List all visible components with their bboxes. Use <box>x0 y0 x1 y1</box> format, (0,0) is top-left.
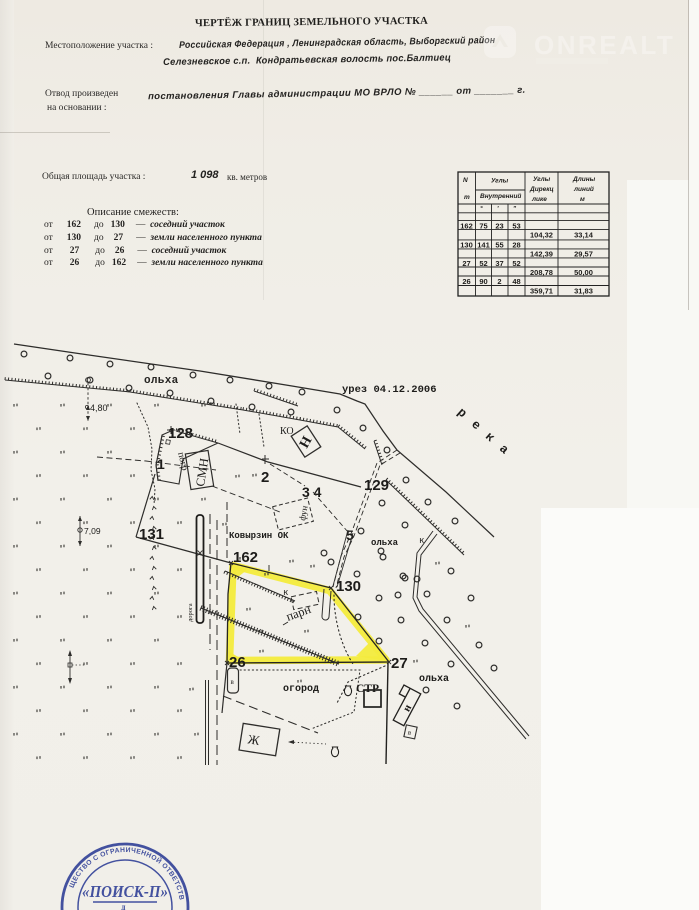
svg-text:N: N <box>463 177 468 184</box>
svg-text:37: 37 <box>495 259 503 268</box>
svg-text:ольха: ольха <box>144 375 179 387</box>
svg-text:фун: фун <box>297 505 309 522</box>
svg-text:река: река <box>454 405 519 464</box>
svg-text:СТР: СТР <box>356 683 379 695</box>
svg-text:3 4: 3 4 <box>302 484 322 500</box>
svg-text:т: т <box>464 194 470 201</box>
svg-text:23: 23 <box>495 221 503 230</box>
svg-text:Ж: Ж <box>247 731 261 748</box>
svg-text:2: 2 <box>497 277 501 286</box>
svg-text:к: к <box>283 588 288 598</box>
svg-text:90: 90 <box>479 277 487 286</box>
svg-text:ольха: ольха <box>419 674 449 685</box>
svg-text:линий: линий <box>573 185 594 193</box>
svg-text:208,78: 208,78 <box>530 268 553 277</box>
svg-text:парн: парн <box>284 602 313 624</box>
svg-text:141: 141 <box>477 240 490 249</box>
svg-text:СМН: СМН <box>193 457 211 487</box>
svg-text:359,71: 359,71 <box>530 287 553 296</box>
svg-text:26: 26 <box>462 277 470 286</box>
svg-text:ONREALT: ONREALT <box>534 30 675 60</box>
svg-text:1: 1 <box>157 456 165 472</box>
svg-text:33,14: 33,14 <box>574 231 594 240</box>
svg-text:52: 52 <box>512 259 520 268</box>
svg-text:131: 131 <box>139 526 164 543</box>
svg-text:130: 130 <box>336 578 361 595</box>
svg-text:Внутренний: Внутренний <box>480 192 521 200</box>
svg-text:27: 27 <box>391 655 408 672</box>
svg-text:31,83: 31,83 <box>574 287 593 296</box>
svg-text:": " <box>513 206 517 213</box>
svg-text:огород: огород <box>283 684 319 695</box>
svg-text:в: в <box>231 678 235 686</box>
svg-text:ЩЕСТВО С ОГРАНИЧЕННОЙ ОТВЕТСТВ: ЩЕСТВО С ОГРАНИЧЕННОЙ ОТВЕТСТВЕННОСТ <box>0 0 185 901</box>
svg-text:53: 53 <box>512 221 520 230</box>
svg-text:«ПОИСК-П»: «ПОИСК-П» <box>82 882 168 901</box>
svg-text:в: в <box>407 728 413 737</box>
svg-text:129: 129 <box>364 477 389 494</box>
svg-text:29,57: 29,57 <box>574 250 593 259</box>
svg-text:162: 162 <box>233 549 258 566</box>
svg-text:162: 162 <box>460 221 473 230</box>
svg-text:н: н <box>401 702 415 714</box>
svg-text:Длины: Длины <box>572 176 596 183</box>
svg-text:': ' <box>497 206 499 213</box>
svg-text:4,80: 4,80 <box>90 403 108 413</box>
svg-text:142,39: 142,39 <box>530 250 553 259</box>
svg-text:52: 52 <box>479 259 487 268</box>
svg-text:урез 04.12.2006: урез 04.12.2006 <box>342 384 437 396</box>
svg-text:Ковырзин ОК: Ковырзин ОК <box>229 531 289 541</box>
svg-text:104,32: 104,32 <box>530 231 553 240</box>
svg-text:48: 48 <box>512 277 520 286</box>
svg-text:7,09: 7,09 <box>84 526 101 536</box>
svg-text:д: д <box>121 902 126 910</box>
svg-text:130: 130 <box>460 240 473 249</box>
svg-text:Углы: Углы <box>491 178 509 185</box>
svg-text:Дирекц: Дирекц <box>529 186 554 193</box>
svg-text:50,00: 50,00 <box>574 268 593 277</box>
svg-text:55: 55 <box>495 240 503 249</box>
svg-text:2: 2 <box>261 469 269 486</box>
svg-text:Углы: Углы <box>533 176 551 183</box>
svg-text:28: 28 <box>512 240 520 249</box>
svg-text:м: м <box>580 196 585 203</box>
svg-text:°: ° <box>480 205 483 213</box>
svg-text:75: 75 <box>479 221 487 230</box>
svg-text:ольха: ольха <box>371 538 399 548</box>
svg-text:лике: лике <box>531 196 547 203</box>
svg-text:дорога: дорога <box>187 603 194 622</box>
svg-text:27: 27 <box>462 259 470 268</box>
